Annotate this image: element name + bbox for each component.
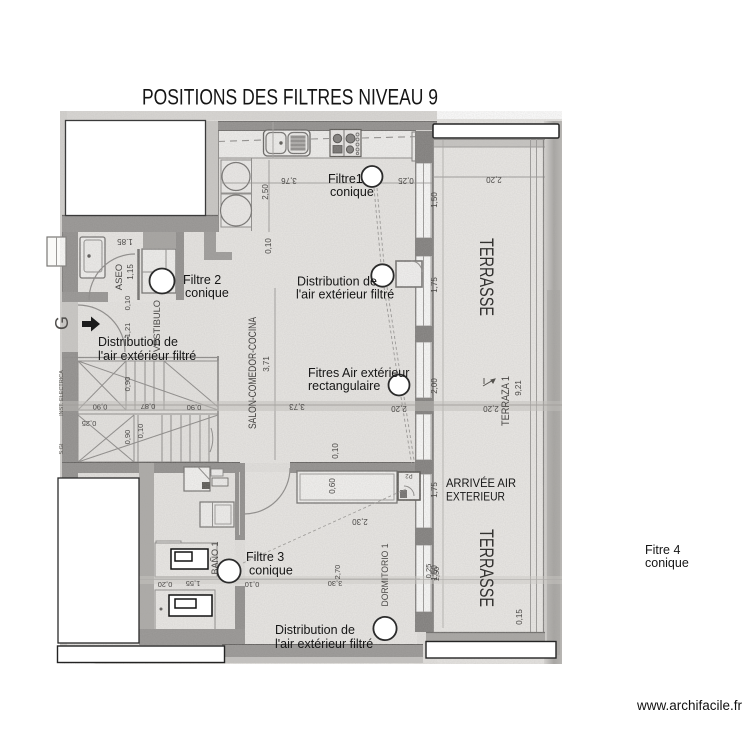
svg-text:rectangulaire: rectangulaire — [308, 379, 380, 393]
svg-text:1,75: 1,75 — [430, 277, 439, 293]
svg-text:Filtre1: Filtre1 — [328, 172, 363, 186]
svg-text:TERRASSE: TERRASSE — [475, 238, 496, 316]
svg-text:INST. ELECTRICA: INST. ELECTRICA — [59, 370, 65, 416]
svg-text:G: G — [52, 316, 72, 330]
svg-text:2,20: 2,20 — [486, 175, 502, 184]
svg-text:EXTERIEUR: EXTERIEUR — [446, 490, 505, 504]
svg-text:0,90: 0,90 — [93, 403, 108, 412]
svg-text:DORMITORIO 1: DORMITORIO 1 — [380, 544, 390, 607]
svg-text:0,15: 0,15 — [515, 609, 524, 625]
svg-text:Filtre 2: Filtre 2 — [183, 273, 221, 287]
svg-text:2,30: 2,30 — [352, 517, 368, 526]
svg-text:0,10: 0,10 — [123, 296, 132, 311]
svg-text:l'air extérieur filtré: l'air extérieur filtré — [296, 288, 394, 302]
svg-text:2,20: 2,20 — [483, 404, 499, 413]
svg-text:conique: conique — [185, 286, 229, 300]
svg-text:3,30: 3,30 — [328, 579, 343, 588]
svg-text:3,76: 3,76 — [281, 176, 297, 185]
svg-text:ARRIVÉE AIR: ARRIVÉE AIR — [446, 475, 516, 490]
svg-text:Filtre 3: Filtre 3 — [246, 550, 284, 564]
svg-text:S.GI: S.GI — [59, 443, 65, 454]
svg-text:3,71: 3,71 — [262, 356, 271, 372]
svg-text:POSITIONS DES FILTRES NIVEAU: POSITIONS DES FILTRES NIVEAU 9 — [142, 85, 438, 110]
svg-text:SALON-COMEDOR-COCINA: SALON-COMEDOR-COCINA — [247, 316, 259, 429]
svg-text:TERRASSE: TERRASSE — [475, 529, 496, 607]
svg-text:0,90: 0,90 — [123, 430, 132, 445]
svg-text:9,21: 9,21 — [514, 380, 523, 396]
svg-text:0,90: 0,90 — [123, 377, 132, 392]
svg-text:2,50: 2,50 — [261, 184, 270, 200]
svg-text:Fitres Air extérieur: Fitres Air extérieur — [308, 366, 409, 380]
svg-text:0,20: 0,20 — [158, 580, 173, 589]
svg-text:0,87: 0,87 — [141, 402, 156, 411]
svg-text:TERRAZA 1: TERRAZA 1 — [500, 376, 512, 426]
svg-text:2,70: 2,70 — [333, 565, 342, 580]
svg-text:0,25: 0,25 — [398, 176, 414, 185]
svg-text:P2: P2 — [405, 472, 413, 478]
svg-text:0,25: 0,25 — [82, 419, 97, 428]
svg-text:conique: conique — [249, 564, 293, 578]
svg-text:2,00: 2,00 — [430, 378, 439, 394]
svg-text:0,60: 0,60 — [328, 478, 337, 494]
svg-text:1,55: 1,55 — [186, 579, 201, 588]
svg-text:l'air extérieur filtré: l'air extérieur filtré — [275, 637, 373, 651]
svg-text:conique: conique — [645, 556, 689, 570]
svg-text:1.85: 1.85 — [117, 237, 133, 246]
svg-text:ASEO: ASEO — [114, 264, 125, 290]
svg-text:1,15: 1,15 — [126, 264, 135, 280]
svg-text:1,75: 1,75 — [430, 482, 439, 498]
svg-text:Distribution de: Distribution de — [297, 275, 377, 289]
svg-text:www.archifacile.fr: www.archifacile.fr — [636, 698, 743, 713]
svg-text:0,10: 0,10 — [245, 580, 260, 589]
svg-text:0,10: 0,10 — [136, 424, 145, 439]
svg-text:2,20: 2,20 — [391, 404, 407, 413]
svg-text:0,10: 0,10 — [264, 238, 273, 254]
svg-text:Fitre 4: Fitre 4 — [645, 543, 680, 557]
svg-text:1,50: 1,50 — [430, 565, 439, 581]
svg-text:1,50: 1,50 — [430, 192, 439, 208]
svg-text:0,90: 0,90 — [187, 403, 202, 412]
svg-text:Distribution de: Distribution de — [275, 623, 355, 637]
svg-text:0,10: 0,10 — [331, 443, 340, 459]
svg-text:conique: conique — [330, 185, 374, 199]
svg-text:l'air extérieur filtré: l'air extérieur filtré — [98, 349, 196, 363]
svg-text:3,73: 3,73 — [289, 402, 305, 411]
svg-text:Distribution de: Distribution de — [98, 335, 178, 349]
